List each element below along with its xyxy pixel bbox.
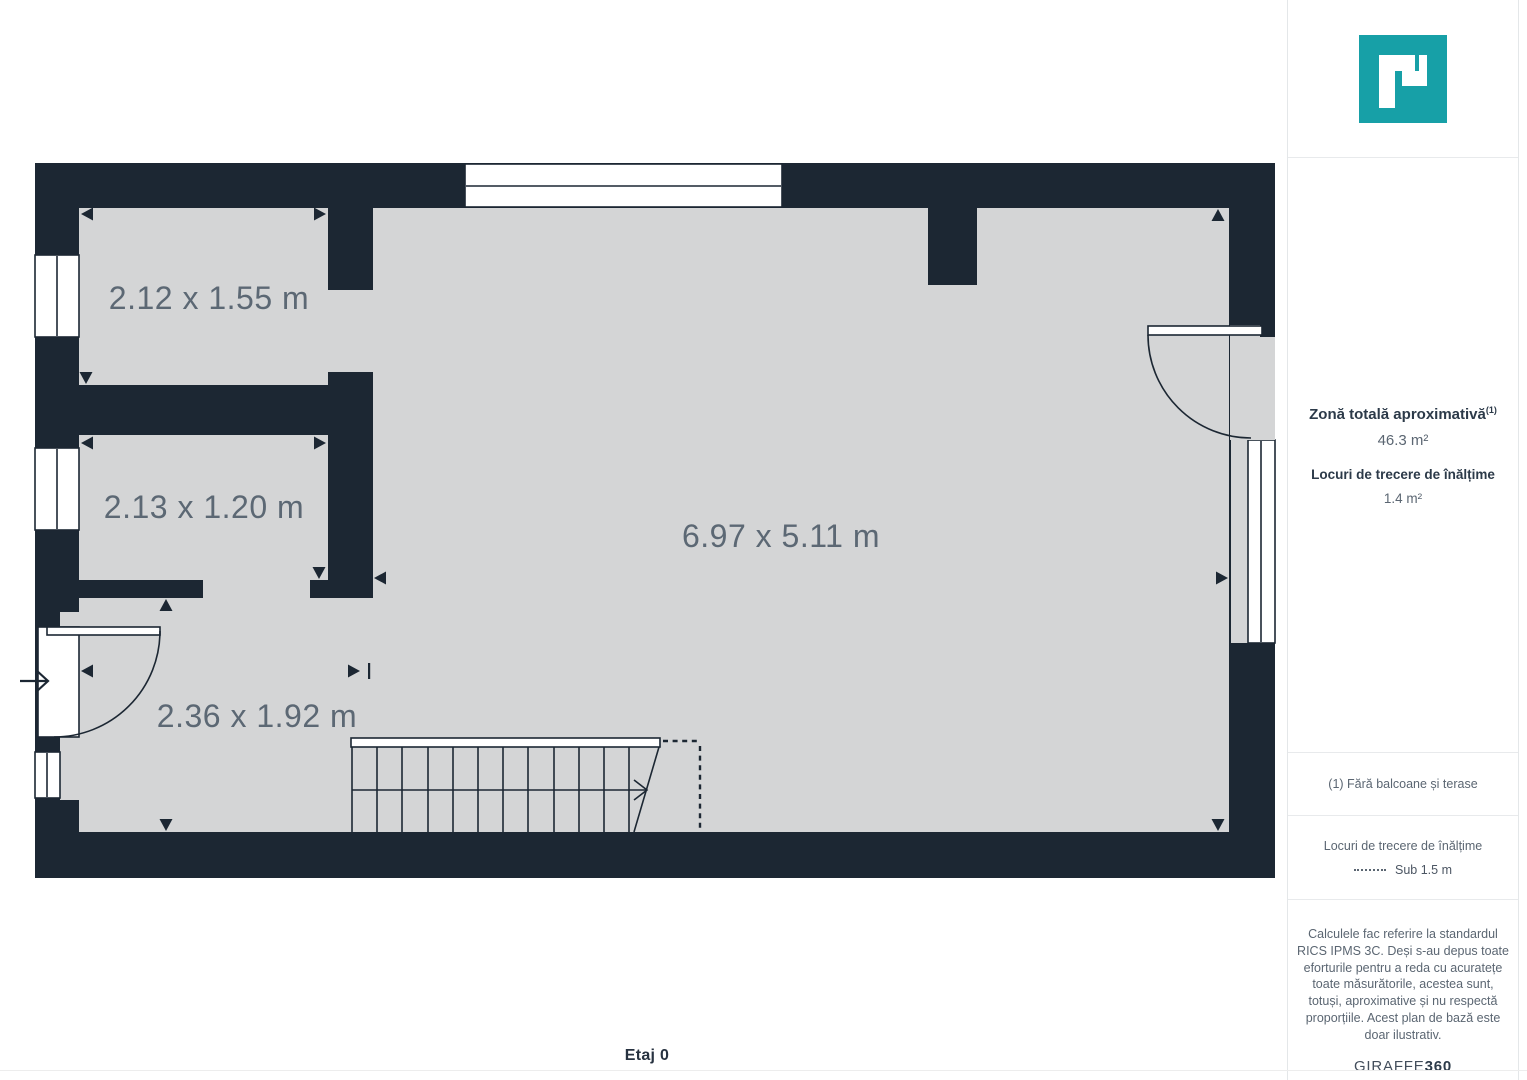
wall-pillar [928,208,977,285]
giraffe360-logo-icon [1359,35,1447,123]
entrance-pocket [60,737,79,800]
legend-section: Locuri de trecere de înălțime Sub 1.5 m [1288,816,1518,900]
total-area-title: Zonă totală aproximativă(1) [1309,405,1497,423]
total-area-value: 46.3 m² [1309,432,1497,449]
room-label-main: 6.97 x 5.11 m [682,518,880,554]
marker-stop-tick [368,663,370,679]
room-label-storage-top: 2.12 x 1.55 m [109,280,309,316]
legend-item-label: Sub 1.5 m [1395,863,1452,877]
headroom-stat: Locuri de trecere de înălțime 1.4 m² [1311,467,1495,506]
room-label-storage-mid: 2.13 x 1.20 m [104,489,304,525]
room-label-hall: 2.36 x 1.92 m [157,698,357,734]
floorplan-page: 2.12 x 1.55 m 2.13 x 1.20 m 6.97 x 5.11 … [0,0,1527,1080]
stair-stringer [351,738,660,747]
entrance-door-leaf [47,627,160,635]
area-stats-section: Zonă totală aproximativă(1) 46.3 m² Locu… [1288,158,1518,753]
disclaimer-section: Calculele fac referire la standardul RIC… [1288,900,1518,1080]
giraffe360-brand: GIRAFFE360 [1354,1058,1452,1075]
floor-plan-svg: 2.12 x 1.55 m 2.13 x 1.20 m 6.97 x 5.11 … [0,0,1287,1080]
floor-name-label: Etaj 0 [625,1047,670,1064]
floor-plan: 2.12 x 1.55 m 2.13 x 1.20 m 6.97 x 5.11 … [0,0,1287,1080]
window-right-recess [1230,440,1248,643]
entrance-notch [60,612,79,627]
info-sidebar: Zonă totală aproximativă(1) 46.3 m² Locu… [1287,0,1519,1080]
legend-title: Locuri de trecere de înălțime [1324,839,1482,853]
footnote-section: (1) Fără balcoane și terase [1288,753,1518,816]
terrace-door-opening [1230,325,1275,440]
footnote-text: (1) Fără balcoane și terase [1328,777,1477,791]
logo-section [1288,0,1518,158]
page-bottom-divider [0,1070,1527,1071]
footnote-marker: (1) [1486,405,1497,415]
opening-mid-room [203,580,310,598]
terrace-door-leaf [1148,326,1262,335]
legend-item: Sub 1.5 m [1354,863,1452,877]
disclaimer-text: Calculele fac referire la standardul RIC… [1296,926,1510,1043]
headroom-title: Locuri de trecere de înălțime [1311,467,1495,482]
dotted-line-sample-icon [1354,869,1386,871]
headroom-value: 1.4 m² [1311,491,1495,506]
opening-top-room [328,290,373,372]
total-area-stat: Zonă totală aproximativă(1) 46.3 m² [1309,405,1497,449]
